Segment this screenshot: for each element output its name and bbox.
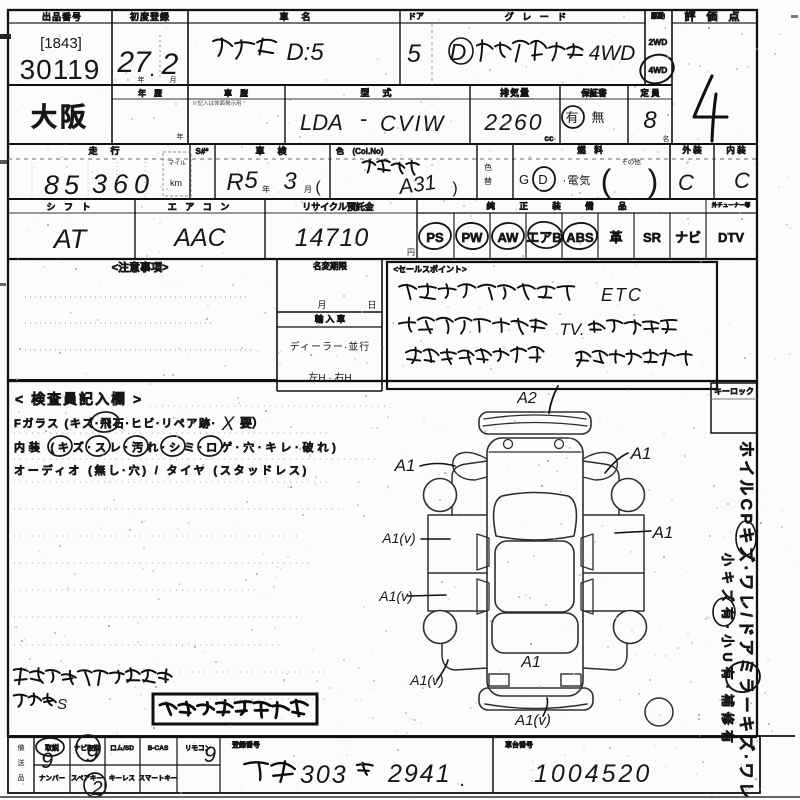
svg-text:5: 5 <box>244 167 258 194</box>
svg-text:シ フ ト: シ フ ト <box>46 202 93 212</box>
svg-text:27: 27 <box>116 46 152 79</box>
svg-text:·電気: ·電気 <box>563 173 592 187</box>
svg-text:円: 円 <box>407 248 415 257</box>
svg-text:A2: A2 <box>516 390 537 407</box>
svg-text:cc: cc <box>545 134 554 143</box>
svg-text:5: 5 <box>407 40 421 68</box>
svg-text:定 員: 定 員 <box>639 88 660 98</box>
svg-text:内装 (キズ·スレ·汚れ·シミ·ロゲ·穴·キレ·破れ): 内装 (キズ·スレ·汚れ·シミ·ロゲ·穴·キレ·破れ) <box>14 440 340 454</box>
svg-text:A1: A1 <box>630 444 652 463</box>
svg-text:月: 月 <box>170 76 177 84</box>
svg-text:2260: 2260 <box>483 109 543 135</box>
svg-text:C: C <box>734 168 750 193</box>
svg-text:替: 替 <box>484 176 492 186</box>
svg-text:駆動: 駆動 <box>650 11 665 20</box>
svg-text:(: ( <box>601 163 612 199</box>
svg-text:360: 360 <box>92 169 155 199</box>
svg-text:外 装: 外 装 <box>681 145 702 155</box>
svg-text:※記入は体面掲示用: ※記入は体面掲示用 <box>192 99 242 107</box>
svg-text:D:5: D:5 <box>286 39 324 66</box>
svg-text:革: 革 <box>609 230 622 245</box>
svg-text:303: 303 <box>300 761 348 789</box>
svg-text:ドア: ドア <box>408 12 424 21</box>
svg-text:その他: その他 <box>621 157 641 166</box>
svg-text:B-CAS: B-CAS <box>148 745 169 752</box>
svg-text:1004520: 1004520 <box>534 760 652 788</box>
svg-text:<注意事項>: <注意事項> <box>112 260 169 274</box>
svg-text:km: km <box>170 178 182 188</box>
svg-text:出品番号: 出品番号 <box>42 11 82 22</box>
svg-text:外チューナー等: 外チューナー等 <box>712 201 751 209</box>
svg-text:R: R <box>226 169 243 196</box>
svg-text:色: 色 <box>484 162 492 172</box>
svg-text:要）: 要） <box>240 415 264 430</box>
svg-text:14710: 14710 <box>295 224 370 252</box>
svg-text:走 行: 走 行 <box>87 145 121 156</box>
svg-text:保証書: 保証書 <box>580 88 607 98</box>
svg-text:9: 9 <box>86 742 98 767</box>
svg-text:マイル: マイル <box>168 160 186 167</box>
svg-text:CVIW: CVIW <box>380 111 446 136</box>
svg-text:送: 送 <box>18 758 25 767</box>
svg-text:燃 料: 燃 料 <box>577 145 603 155</box>
svg-text:年 歴: 年 歴 <box>138 88 162 98</box>
svg-text:年: 年 <box>138 75 145 84</box>
svg-text:キーレス: キーレス <box>109 774 135 782</box>
svg-text:): ) <box>648 163 659 199</box>
svg-text:年: 年 <box>177 132 184 141</box>
svg-text:ナンバー: ナンバー <box>39 774 65 782</box>
svg-text:排気量: 排気量 <box>500 87 530 98</box>
svg-text:<セールスポイント>: <セールスポイント> <box>393 264 467 274</box>
svg-text:ディーラー·並行: ディーラー·並行 <box>290 340 371 353</box>
svg-text:.: . <box>149 56 155 81</box>
svg-text:G: G <box>519 172 529 187</box>
svg-text:4WD: 4WD <box>589 42 636 65</box>
svg-text:9: 9 <box>204 742 216 767</box>
svg-text:無: 無 <box>591 110 604 125</box>
svg-text:8: 8 <box>643 107 657 134</box>
svg-text:A1(v): A1(v) <box>409 672 443 688</box>
svg-text:2WD: 2WD <box>649 37 668 47</box>
svg-text:内 装: 内 装 <box>726 145 746 155</box>
svg-text:左H · 右H: 左H · 右H <box>308 371 351 384</box>
svg-text:A1: A1 <box>652 523 674 542</box>
svg-text:純 正 装 備 品: 純 正 装 備 品 <box>487 201 638 211</box>
svg-text:SR: SR <box>643 230 662 245</box>
svg-text:大阪: 大阪 <box>31 102 89 132</box>
svg-text:PS: PS <box>426 230 444 245</box>
svg-text:車 検: 車 検 <box>255 145 288 156</box>
svg-text:A1(v): A1(v) <box>514 712 551 729</box>
svg-text:グ レ ー ド: グ レ ー ド <box>505 11 570 22</box>
svg-text:X: X <box>221 414 236 435</box>
svg-text:車 歴: 車 歴 <box>224 88 248 98</box>
svg-text:ABS: ABS <box>566 230 594 245</box>
svg-text:色: 色 <box>336 146 344 156</box>
svg-text:4WD: 4WD <box>649 65 668 75</box>
svg-text:名変期限: 名変期限 <box>313 261 348 271</box>
svg-text:スマートキー: スマートキー <box>139 774 178 782</box>
svg-text:LDA: LDA <box>300 110 343 135</box>
svg-text:30119: 30119 <box>20 54 101 85</box>
svg-text:D: D <box>538 172 547 187</box>
svg-text:輸 入 車: 輸 入 車 <box>315 314 346 324</box>
svg-text:(Col.No): (Col.No) <box>352 147 383 156</box>
svg-text:85: 85 <box>44 170 84 200</box>
svg-text:品: 品 <box>18 774 25 782</box>
svg-text:ロム/SD: ロム/SD <box>110 744 134 752</box>
svg-text:AW: AW <box>498 230 520 245</box>
svg-text:A1(v): A1(v) <box>381 530 415 546</box>
svg-text:登録番号: 登録番号 <box>231 740 260 749</box>
svg-text:車台番号: 車台番号 <box>505 740 533 749</box>
svg-text:9: 9 <box>41 748 53 773</box>
svg-text:S#*: S#* <box>196 147 210 156</box>
svg-text:C: C <box>678 170 694 195</box>
svg-text:有: 有 <box>565 110 578 125</box>
svg-text:(: ( <box>315 179 321 196</box>
svg-text:ホイルCPキズ·ワレ/ドアミラーキズ·ワレ: ホイルCPキズ·ワレ/ドアミラーキズ·ワレ <box>737 441 756 800</box>
svg-text:エ ア コ ン: エ ア コ ン <box>168 202 233 212</box>
svg-text:車 名: 車 名 <box>279 11 312 22</box>
svg-text:PW: PW <box>462 230 484 245</box>
svg-text:ナビ: ナビ <box>675 230 701 245</box>
svg-text:オーディオ (無し·穴) / タイヤ (スタッドレス): オーディオ (無し·穴) / タイヤ (スタッドレス) <box>14 463 309 477</box>
svg-text:日: 日 <box>367 300 376 310</box>
svg-text:ETC: ETC <box>601 285 643 305</box>
svg-text:.: . <box>459 769 465 791</box>
svg-text:): ) <box>452 180 457 197</box>
svg-text:DTV: DTV <box>718 230 744 245</box>
svg-text:評 価 点: 評 価 点 <box>684 9 743 23</box>
svg-text:型 式: 型 式 <box>360 87 393 98</box>
svg-text:月: 月 <box>304 185 312 194</box>
svg-text:小キズ有·小U有·補修有: 小キズ有·小U有·補修有 <box>720 553 735 748</box>
svg-text:名: 名 <box>663 134 670 143</box>
svg-text:< 検査員記入欄 >: < 検査員記入欄 > <box>15 391 143 407</box>
svg-text:S: S <box>57 696 67 713</box>
svg-text:リサイクル預託金: リサイクル預託金 <box>302 201 375 212</box>
svg-text:AAC: AAC <box>172 224 226 252</box>
svg-text:AT: AT <box>52 224 89 254</box>
svg-text:初度登録: 初度登録 <box>130 11 170 22</box>
svg-text:2941: 2941 <box>387 760 452 788</box>
svg-text:月: 月 <box>317 300 326 310</box>
svg-text:A1: A1 <box>394 456 416 475</box>
svg-text:A1: A1 <box>520 654 541 671</box>
svg-text:-: - <box>360 106 367 131</box>
svg-text:キーロック: キーロック <box>714 386 754 396</box>
svg-text:年: 年 <box>262 184 270 194</box>
svg-text:TV.: TV. <box>559 320 584 339</box>
